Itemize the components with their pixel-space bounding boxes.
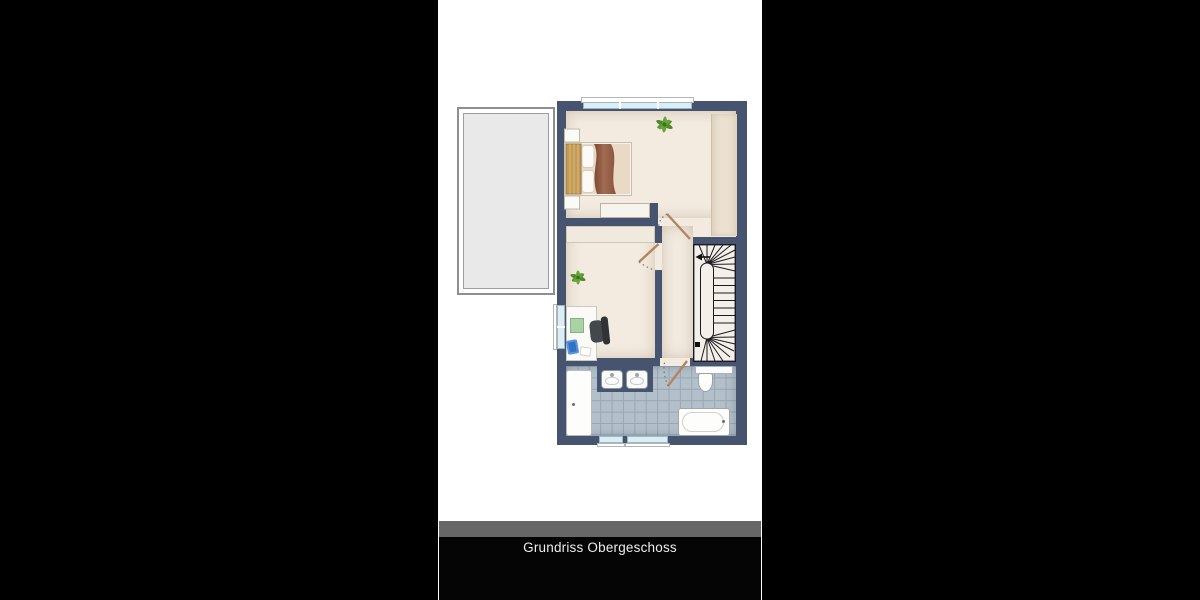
floorplan-image: Grundriss Obergeschoss [438,0,762,600]
bathroom-window-sill [625,443,670,447]
bathtub [678,408,730,436]
caption-title: Grundriss Obergeschoss [523,537,677,555]
office-cabinet [566,226,655,243]
laptop [566,339,579,355]
shower-drain [572,403,575,406]
bedroom-door-threshold [658,218,690,226]
bathroom-window [627,436,668,443]
shower [566,370,592,436]
bathroom-window [599,436,623,443]
wardrobe [711,114,737,236]
window-mullion [657,102,659,109]
balcony-floor [463,113,549,289]
bedroom-window [583,102,692,109]
window-mullion [619,102,621,109]
faucet-icon [635,373,639,377]
office-door-threshold [655,243,662,270]
sink-basin [630,377,644,385]
caption-divider [439,521,761,537]
wall-stub [650,203,658,226]
window-mullion [557,326,565,328]
plant-icon [651,113,678,136]
office-chair [588,314,614,348]
sink [626,370,648,389]
faucet-icon [610,373,614,377]
sink-basin [605,377,619,385]
sink [601,370,623,389]
bathtub-faucet-icon [722,420,725,423]
bathtub-basin [682,412,724,432]
wall-stub [655,226,662,243]
bathroom-door-threshold [660,358,690,366]
desk-pad [570,318,584,333]
balcony [457,107,555,295]
plant-icon [566,267,590,288]
bathroom-window-sill [597,443,625,447]
bedroom-sideboard [600,203,650,218]
hallway [662,226,693,358]
floorplan [438,0,762,521]
caption: Grundriss Obergeschoss [439,537,761,600]
double-bed [564,128,634,210]
winder-staircase [693,244,736,362]
viewer-background: Grundriss Obergeschoss [0,0,1200,600]
